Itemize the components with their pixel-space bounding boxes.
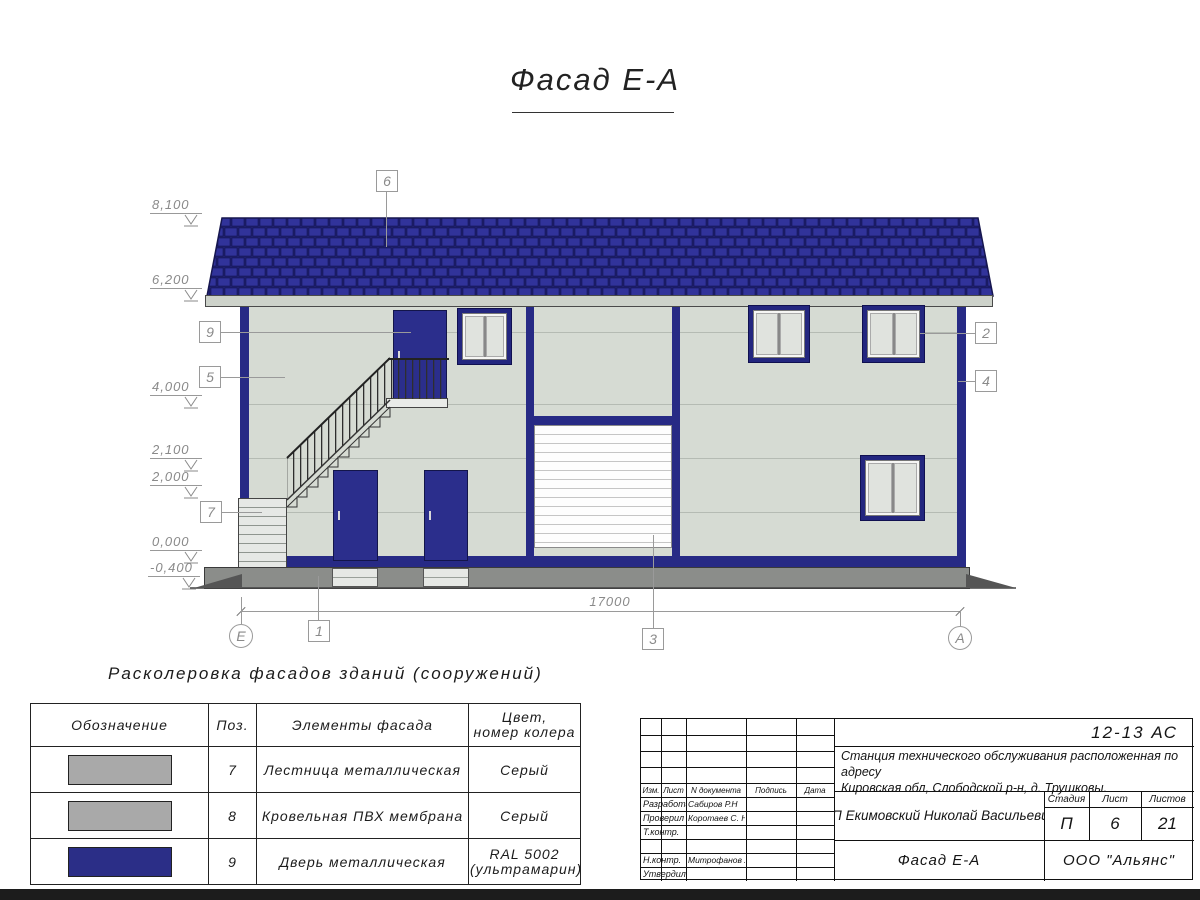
elevation-mark: 8,100 [150, 197, 202, 227]
callout-label: 5 [206, 369, 214, 385]
elevation-value: 2,000 [150, 469, 202, 486]
elevation-mark: -0,400 [148, 560, 200, 590]
color-swatch-ultramarine [68, 847, 172, 877]
legend-header-element: Элементы фасада [257, 704, 469, 747]
tb-stage-value: П [1044, 807, 1089, 840]
elevation-value: 6,200 [150, 272, 202, 289]
axis-label: Е [236, 628, 245, 644]
tb-col-list: Лист [661, 783, 686, 797]
title-underline [512, 112, 674, 113]
callout-label: 2 [982, 325, 990, 341]
legend-row: 9 Дверь металлическая RAL 5002 (ультрама… [31, 839, 581, 885]
elevation-mark: 2,100 [150, 442, 202, 472]
window-upper-middle [748, 305, 810, 363]
window-pane [894, 463, 918, 513]
callout-label: 6 [383, 173, 391, 189]
tb-role-label [643, 839, 686, 853]
callout-label: 1 [315, 623, 323, 639]
legend-header-color-line2: номер колера [470, 725, 579, 740]
title-block: Изм. Лист N документа Подпись Дата Разра… [640, 718, 1193, 880]
dimension-line [241, 611, 960, 612]
legend-element: Кровельная ПВХ мембрана [257, 793, 469, 839]
roof-tiles [207, 218, 993, 296]
tb-col-sign: Подпись [746, 783, 796, 797]
tb-sheets-value: 21 [1141, 807, 1194, 840]
callout-label: 7 [207, 504, 215, 520]
tb-sheet-header: Лист [1089, 791, 1141, 807]
elevation-arrow-icon [180, 577, 198, 590]
tb-role-label: Разработал [643, 797, 686, 811]
tb-role-name: Митрофанов Я. А. [688, 853, 745, 867]
window-pane [895, 313, 918, 355]
callout-marker-9: 9 [199, 321, 221, 343]
window-upper-left [457, 308, 512, 365]
window-pane [756, 313, 778, 355]
corner-pilaster-right [957, 307, 966, 568]
tb-sheets-header: Листов [1141, 791, 1194, 807]
tb-col-izm: Изм. [641, 783, 661, 797]
elevation-arrow-icon [182, 396, 200, 409]
dimension-value: 17000 [540, 594, 680, 609]
window-pane [486, 316, 505, 357]
axis-connector [960, 611, 961, 626]
tb-role-name [688, 839, 745, 853]
callout-marker-3: 3 [642, 628, 664, 650]
leader-line [318, 576, 319, 620]
leader-line [920, 333, 975, 334]
tb-project-line1: Станция технического обслуживания распол… [841, 748, 1191, 780]
tb-role-name [688, 825, 745, 839]
window-lower-right [860, 455, 925, 521]
garage-door [534, 425, 672, 548]
elevation-value: -0,400 [148, 560, 200, 577]
elevation-arrow-icon [182, 486, 200, 499]
garage-header [534, 416, 672, 425]
legend-pos: 9 [209, 839, 257, 885]
leader-line [221, 377, 285, 378]
legend-color-line1: RAL 5002 [470, 847, 579, 862]
callout-marker-6: 6 [376, 170, 398, 192]
tb-col-doc: N документа [686, 783, 746, 797]
tb-drawing-name: Фасад Е-А [834, 840, 1044, 881]
callout-marker-2: 2 [975, 322, 997, 344]
callout-marker-4: 4 [975, 370, 997, 392]
tb-project-name: Станция технического обслуживания распол… [841, 748, 1191, 796]
stair-railing [287, 358, 390, 500]
legend-header-designation: Обозначение [31, 704, 209, 747]
legend-element: Лестница металлическая [257, 747, 469, 793]
legend-element: Дверь металлическая [257, 839, 469, 885]
tb-role-name [688, 867, 745, 881]
window-pane [868, 463, 892, 513]
legend-row: 7 Лестница металлическая Серый [31, 747, 581, 793]
callout-label: 4 [982, 373, 990, 389]
drawing-sheet: Фасад Е-А [0, 0, 1200, 900]
callout-marker-5: 5 [199, 366, 221, 388]
ground-line [190, 565, 1020, 593]
tb-stage-header: Стадия [1044, 791, 1089, 807]
callout-marker-1: 1 [308, 620, 330, 642]
color-swatch-gray [68, 801, 172, 831]
tb-role-label: Т.контр. [643, 825, 686, 839]
leader-line [221, 332, 411, 333]
elevation-mark: 2,000 [150, 469, 202, 499]
elevation-mark: 4,000 [150, 379, 202, 409]
legend-title: Расколеровка фасадов зданий (сооружений) [108, 664, 543, 684]
callout-label: 9 [206, 324, 214, 340]
landing-railing [390, 360, 447, 399]
window-upper-right [862, 305, 925, 363]
elevation-arrow-icon [182, 214, 200, 227]
axis-label: А [955, 630, 964, 646]
axis-marker-a: А [948, 626, 972, 650]
legend-header-color: Цвет, номер колера [469, 704, 581, 747]
tb-role-label: Н.контр. [643, 853, 686, 867]
legend-header-position: Поз. [209, 704, 257, 747]
roof [203, 217, 995, 297]
legend-color-line2: (ультрамарин) [470, 862, 579, 877]
leader-line [386, 192, 387, 247]
axis-connector [241, 597, 242, 624]
garage-jamb-left [526, 307, 534, 568]
tb-sheet-value: 6 [1089, 807, 1141, 840]
elevation-value: 0,000 [150, 534, 202, 551]
tb-role-name: Сабиров Р.Н [688, 797, 745, 811]
legend-row: 8 Кровельная ПВХ мембрана Серый [31, 793, 581, 839]
legend-color: Серый [469, 747, 581, 793]
leader-line [958, 381, 975, 382]
tb-role-name: Коротаев С. Н. [688, 811, 745, 825]
sheet-edge-bar [0, 889, 1200, 900]
window-pane [465, 316, 484, 357]
garage-jamb-right [672, 307, 680, 568]
elevation-value: 4,000 [150, 379, 202, 396]
legend-table: Обозначение Поз. Элементы фасада Цвет, н… [30, 703, 581, 885]
window-pane [780, 313, 802, 355]
tb-client: ИП Екимовский Николай Васильевич [834, 791, 1044, 840]
window-pane [870, 313, 893, 355]
tb-col-date: Дата [796, 783, 834, 797]
elevation-value: 8,100 [150, 197, 202, 214]
leader-line [653, 535, 654, 628]
sheet-title: Фасад Е-А [470, 62, 720, 98]
leader-line [222, 512, 262, 513]
elevation-arrow-icon [182, 289, 200, 302]
tb-role-label: Проверил [643, 811, 686, 825]
tb-company: ООО "Альянс" [1044, 840, 1194, 881]
tb-role-label: Утвердил [643, 867, 686, 881]
callout-label: 3 [649, 631, 657, 647]
tb-doc-number: 12-13 АС [834, 719, 1178, 746]
elevation-mark: 6,200 [150, 272, 202, 302]
elevation-value: 2,100 [150, 442, 202, 459]
legend-header-color-line1: Цвет, [470, 710, 579, 725]
legend-pos: 8 [209, 793, 257, 839]
legend-color: Серый [469, 793, 581, 839]
color-swatch-gray [68, 755, 172, 785]
callout-marker-7: 7 [200, 501, 222, 523]
axis-marker-e: Е [229, 624, 253, 648]
legend-header-row: Обозначение Поз. Элементы фасада Цвет, н… [31, 704, 581, 747]
legend-pos: 7 [209, 747, 257, 793]
